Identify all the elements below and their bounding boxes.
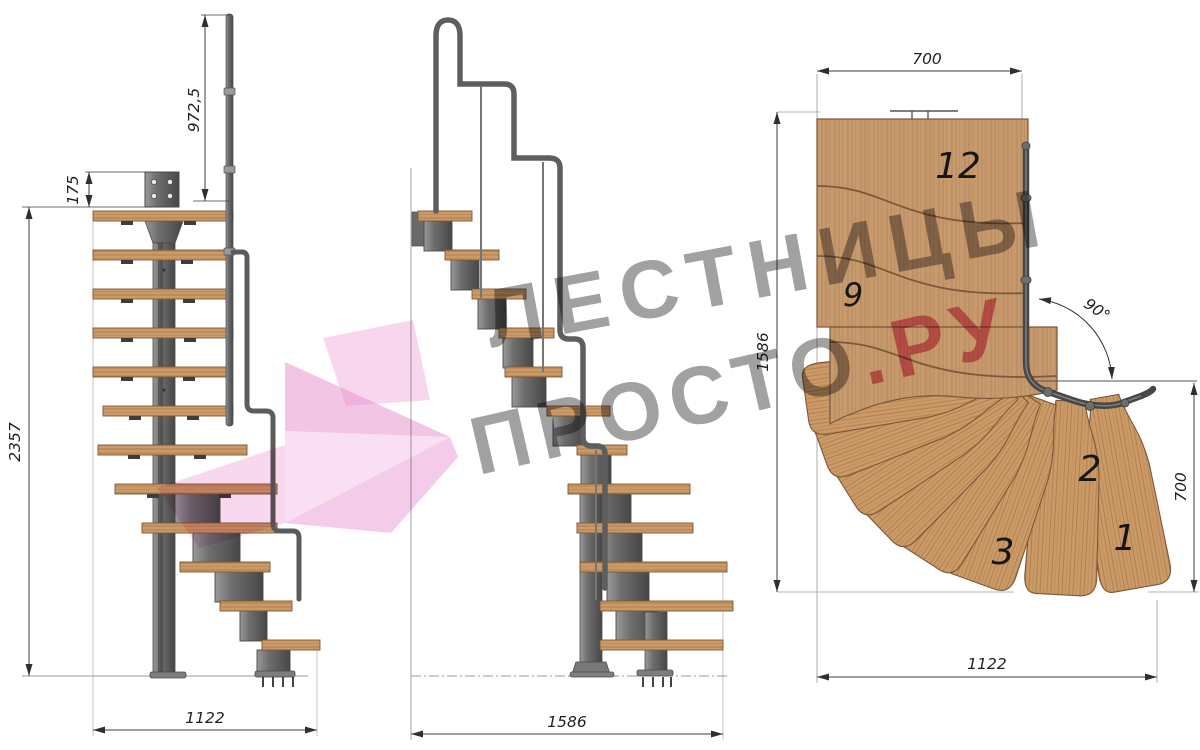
dim-base-length: 1586 (547, 713, 587, 731)
step-number-9: 9 (843, 276, 863, 314)
tread (98, 445, 247, 455)
step-number-3: 3 (992, 532, 1015, 573)
step-number-12: 12 (935, 146, 981, 187)
dim-top-plate: 175 (64, 175, 82, 205)
tread (93, 211, 233, 221)
tread-clamps (121, 221, 231, 498)
support-base-plate (637, 670, 673, 676)
top-mounting-plate (145, 172, 179, 207)
stringer-modules (424, 221, 658, 641)
support-base-plate (255, 671, 295, 677)
step-number-1: 1 (1114, 518, 1137, 559)
tread (103, 406, 233, 416)
handrail-post (226, 14, 233, 426)
column-core (158, 243, 163, 675)
tread (220, 601, 292, 611)
dim-base-width: 1122 (185, 709, 224, 727)
dim-right-depth: 700 (1172, 472, 1190, 502)
dim-top-width: 700 (912, 50, 942, 68)
dim-total-height: 2357 (6, 422, 24, 462)
side-elevation-view: 1586 (411, 20, 733, 740)
step-number-2: 2 (1079, 449, 1102, 490)
front-elevation-view: 972,5 175 2357 1122 (6, 14, 320, 736)
dim-bottom-width: 1122 (967, 655, 1006, 673)
column-funnel-bracket (145, 221, 183, 243)
watermark-arrow (157, 320, 458, 548)
dim-left-length: 1586 (754, 332, 772, 372)
central-column (153, 243, 175, 675)
tread (93, 289, 231, 299)
dim-handrail-height: 972,5 (185, 88, 203, 132)
central-column-side (580, 494, 602, 666)
tread (180, 562, 270, 572)
wall-bracket-plan (890, 111, 958, 119)
staircase-technical-drawing: 972,5 175 2357 1122 (0, 0, 1200, 750)
plan-view: 90° 700 1586 700 1122 12 9 3 2 1 (754, 50, 1199, 683)
drawing-canvas: 972,5 175 2357 1122 (0, 0, 1200, 750)
tread (93, 367, 231, 377)
anchor-bolts (643, 677, 671, 687)
anchor-bolts (263, 677, 293, 687)
column-base-plate (570, 672, 614, 677)
tread (262, 640, 320, 650)
column-base-plate (150, 672, 186, 678)
tread (93, 328, 233, 338)
tread (93, 250, 228, 260)
